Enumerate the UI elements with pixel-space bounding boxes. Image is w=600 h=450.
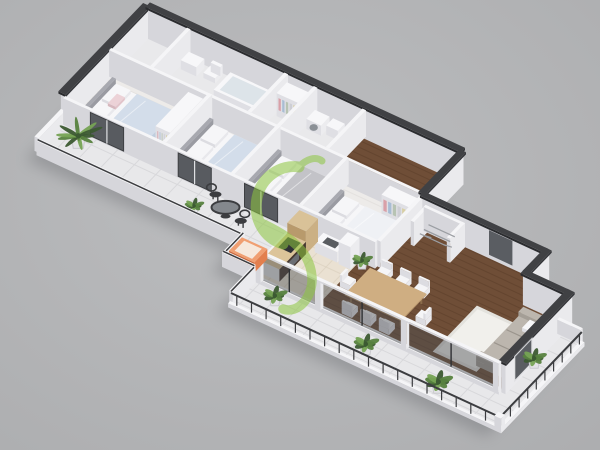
glass-front-pier-sw	[401, 320, 407, 350]
bedroom4-wardrobe-clothes	[388, 202, 391, 215]
floor-plan-canvas	[0, 0, 600, 450]
glass-front-pier-sw	[493, 362, 498, 392]
plant-center	[363, 342, 368, 347]
hall-wardrobe-clothes	[279, 98, 281, 111]
hall-wardrobe-clothes	[282, 100, 284, 113]
plant-center	[532, 356, 536, 360]
bistro-chair-seat	[209, 191, 221, 197]
bistro-chair-seat	[235, 218, 247, 224]
glass-front-pier-se	[321, 280, 324, 311]
plant-center	[273, 294, 277, 298]
utility-wall-left-sw	[411, 221, 414, 247]
plant-center	[192, 204, 196, 208]
glass-front-pier-se	[406, 319, 409, 350]
plant-center	[436, 379, 441, 384]
washer-door	[309, 124, 317, 131]
bedroom4-wardrobe-clothes	[383, 199, 386, 212]
wall-bedrooms-front-se	[375, 240, 377, 269]
wall-living-right-sw	[501, 362, 505, 394]
plant-center	[360, 259, 364, 263]
dining-chair-back-sw	[340, 275, 342, 282]
floor-plan-render	[0, 0, 600, 450]
bistro-table-top	[212, 201, 240, 214]
plant-center	[76, 133, 82, 139]
railing-corner-post	[494, 412, 505, 432]
dining-chair-back-sw	[423, 313, 425, 320]
hall-wardrobe-clothes	[286, 102, 288, 115]
wall-bedroom4-right-sw	[377, 240, 381, 268]
bedroom4-wardrobe-clothes	[393, 204, 396, 217]
glass-front-pier-se	[498, 362, 501, 393]
